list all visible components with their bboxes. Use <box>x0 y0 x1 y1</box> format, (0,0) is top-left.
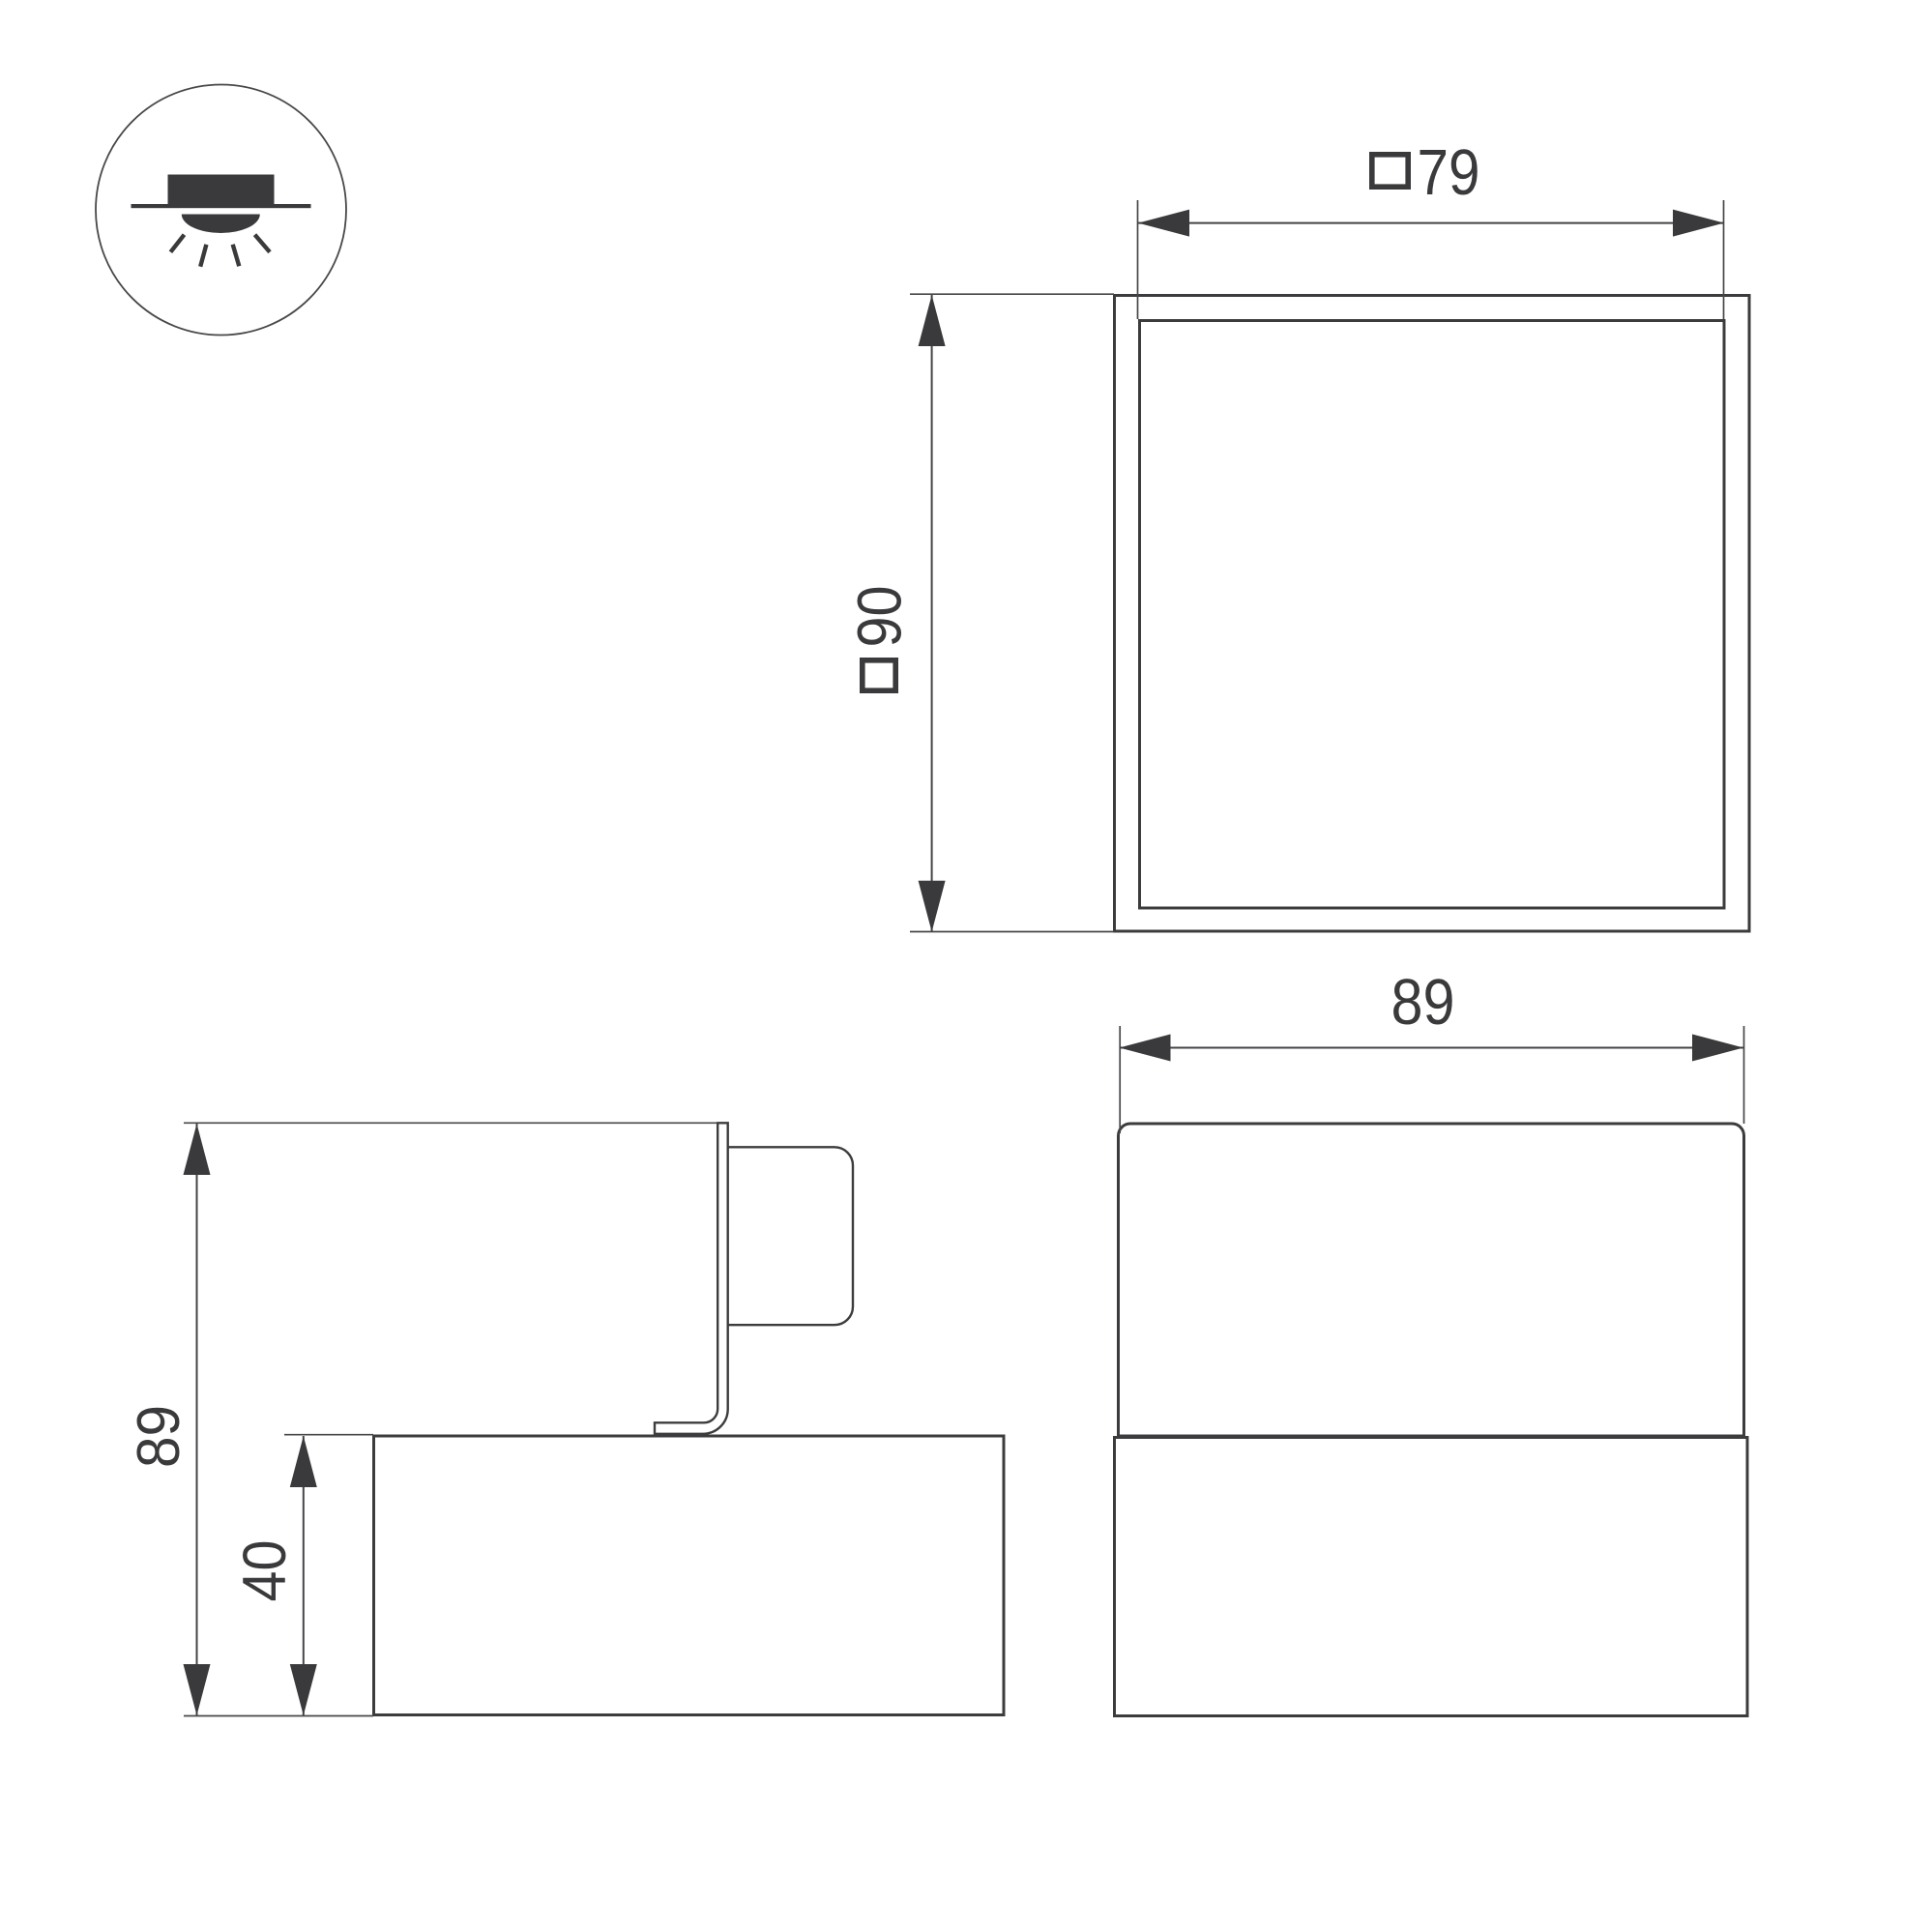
svg-text:40: 40 <box>231 1540 299 1602</box>
svg-text:90: 90 <box>845 586 915 648</box>
svg-text:79: 79 <box>1418 136 1480 209</box>
svg-text:89: 89 <box>1391 966 1455 1039</box>
svg-text:89: 89 <box>125 1405 192 1468</box>
